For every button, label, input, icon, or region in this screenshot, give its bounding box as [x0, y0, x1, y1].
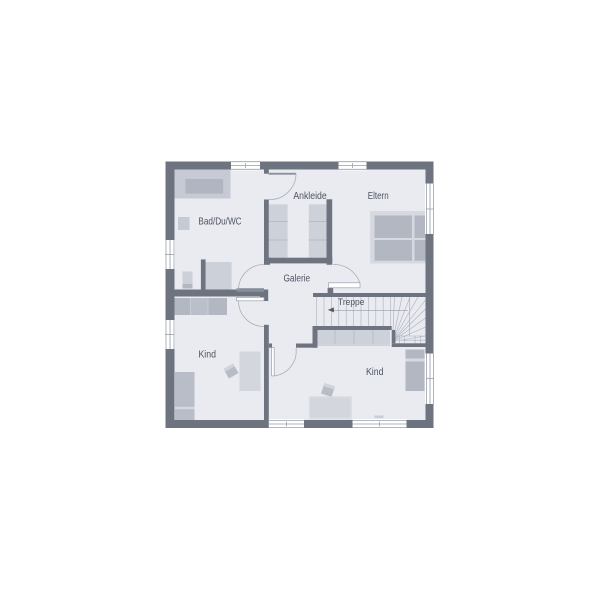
svg-text:Eltern: Eltern: [368, 190, 389, 201]
svg-text:Galerie: Galerie: [283, 273, 310, 284]
svg-text:Bad/Du/WC: Bad/Du/WC: [198, 216, 242, 227]
svg-text:Kind: Kind: [198, 348, 215, 360]
svg-text:Treppe: Treppe: [338, 297, 365, 307]
svg-text:Kind: Kind: [366, 365, 383, 377]
svg-text:Ankleide: Ankleide: [293, 191, 326, 202]
